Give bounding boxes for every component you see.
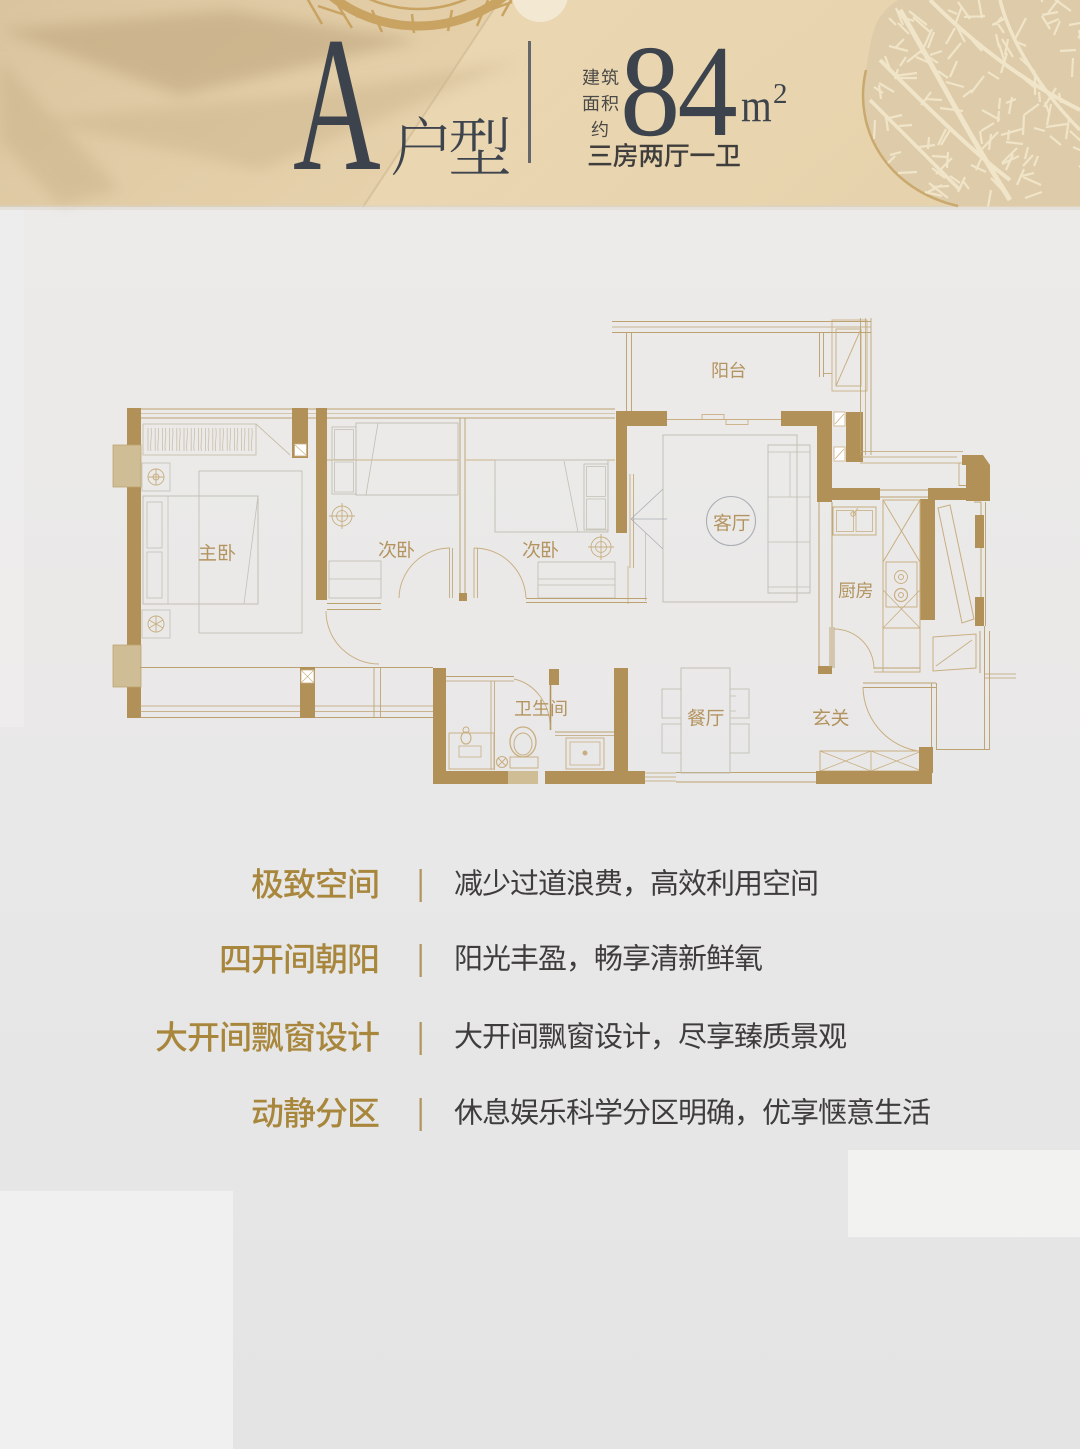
- svg-text:A: A: [293, 0, 381, 211]
- svg-text:2: 2: [773, 78, 788, 110]
- svg-text:m: m: [741, 80, 772, 132]
- svg-text:84: 84: [620, 19, 736, 164]
